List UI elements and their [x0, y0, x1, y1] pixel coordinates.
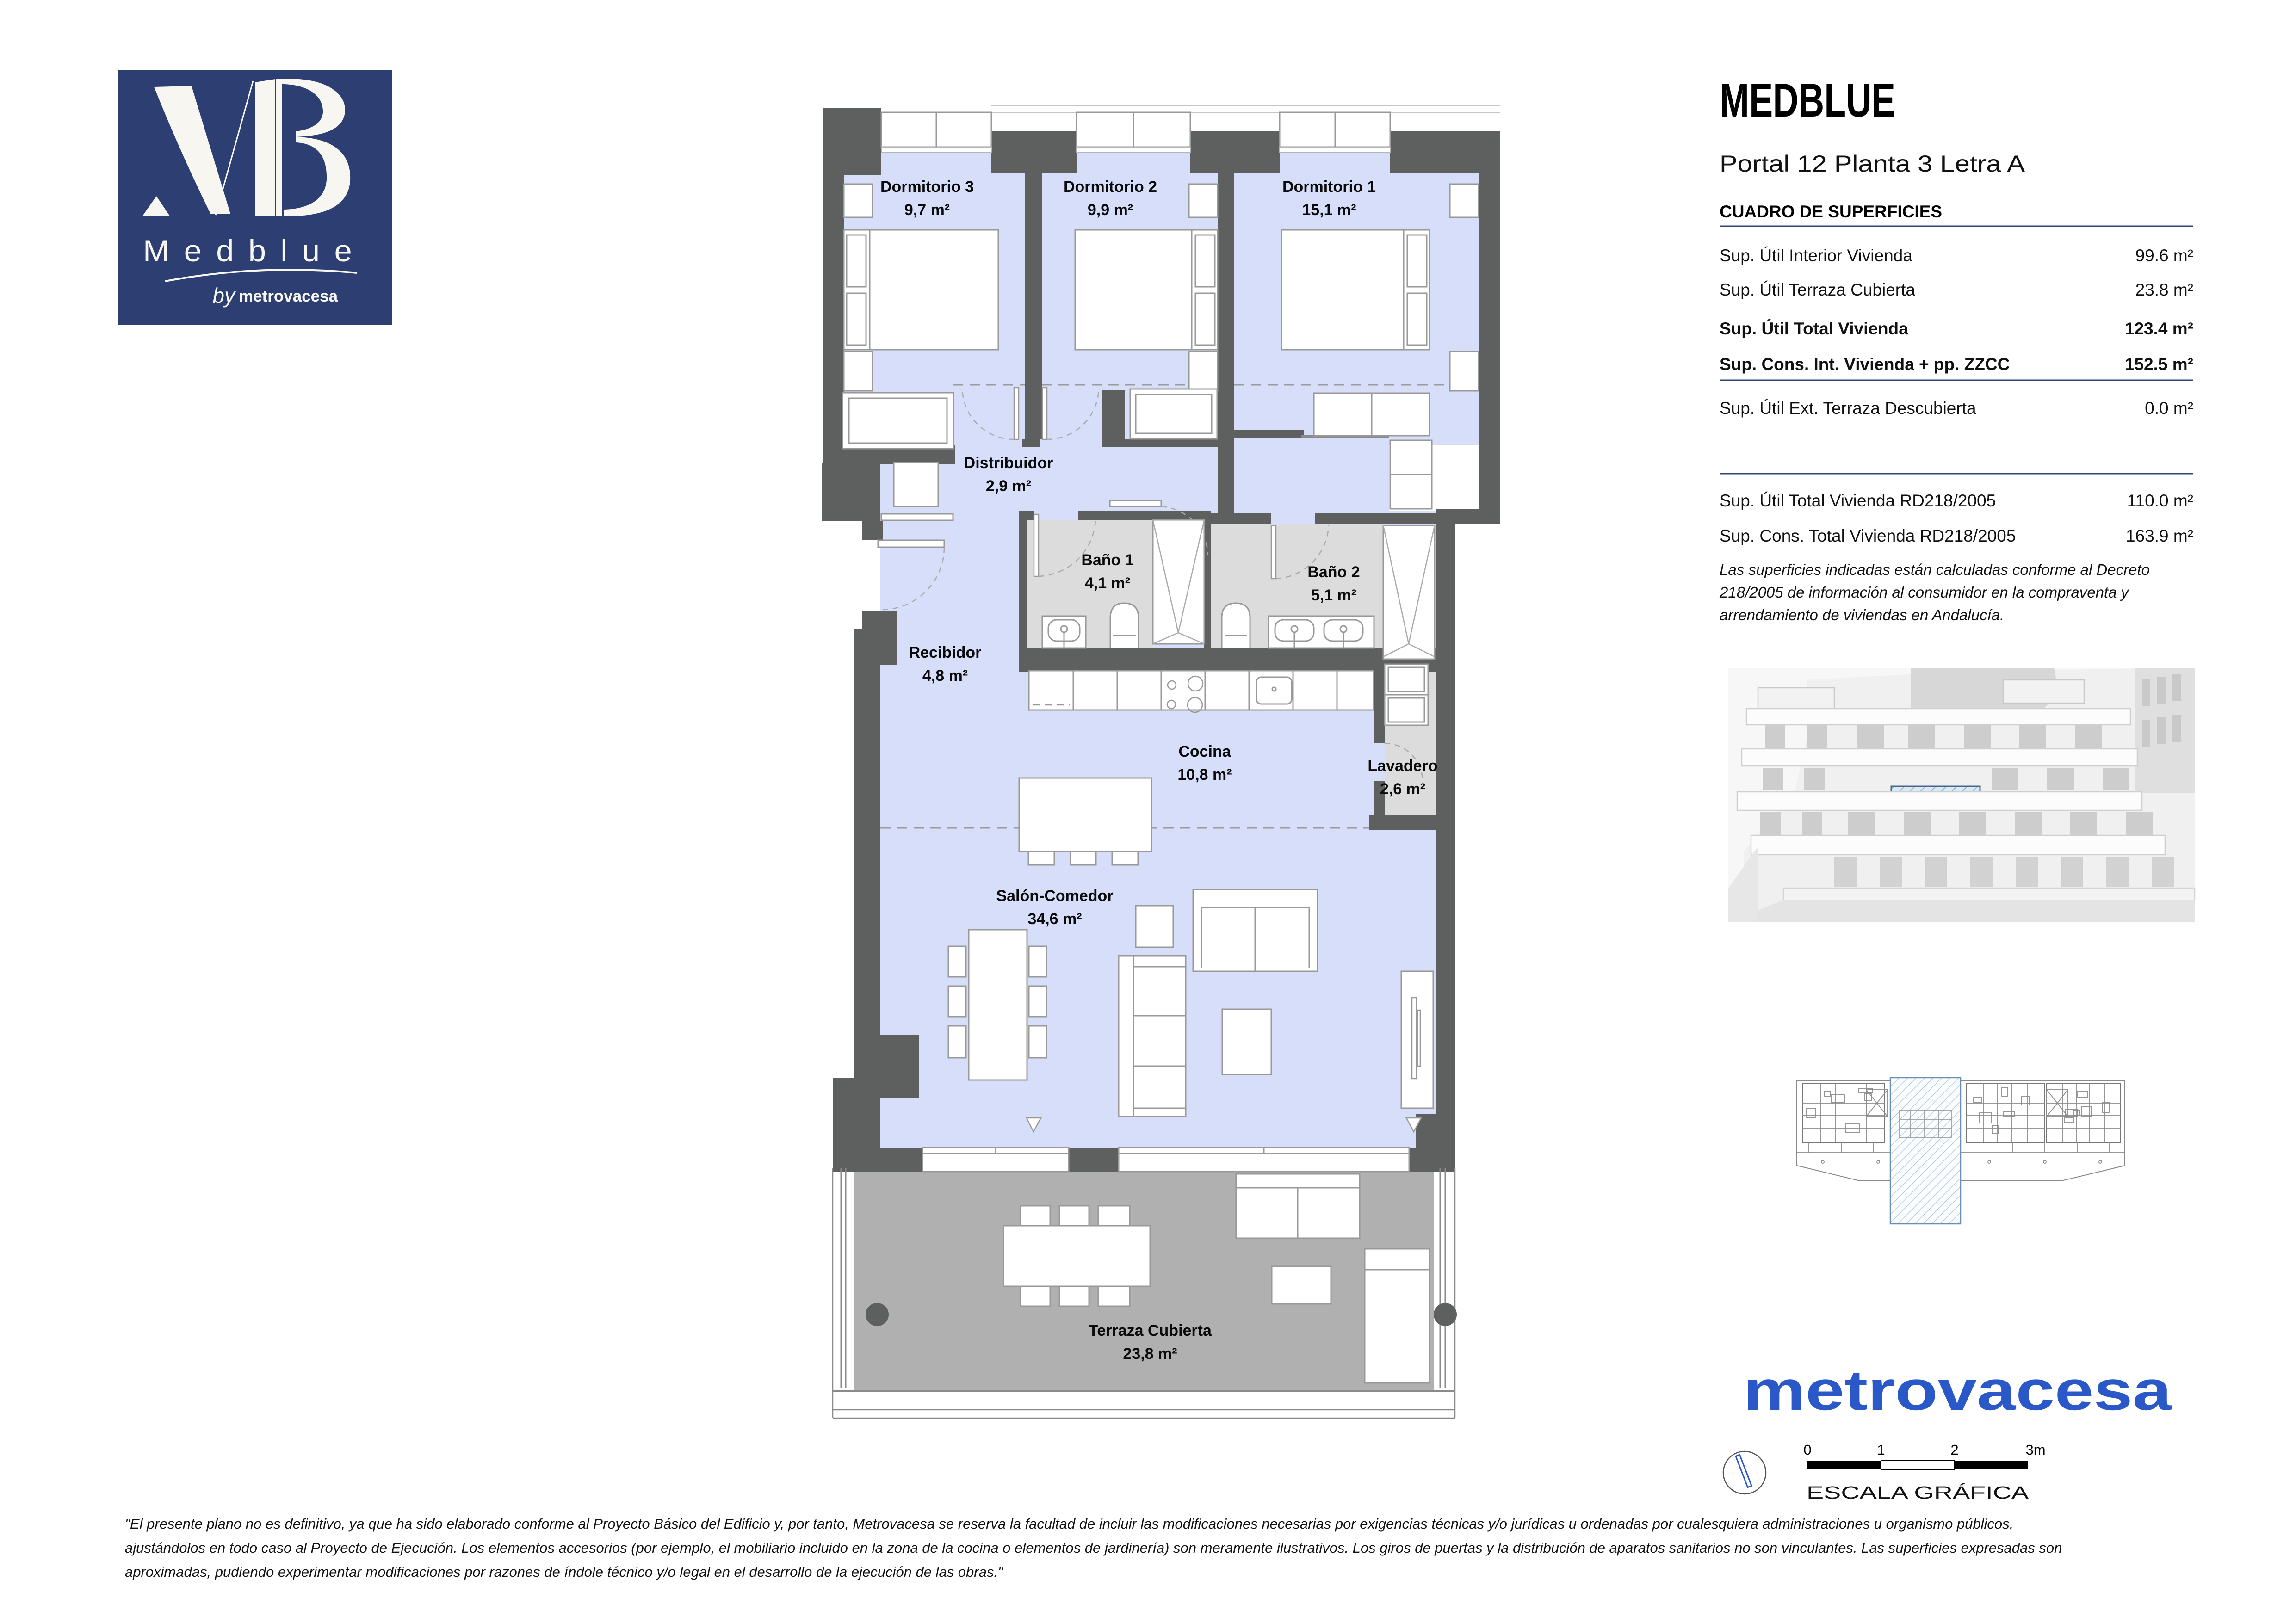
- svg-text:0: 0: [1803, 1442, 1811, 1458]
- svg-text:Baño 1: Baño 1: [1081, 551, 1133, 569]
- svg-text:Las superficies indicadas está: Las superficies indicadas están calculad…: [1720, 561, 2150, 578]
- svg-text:218/2005 de información al con: 218/2005 de información al consumidor en…: [1719, 584, 2130, 601]
- svg-text:ESCALA GRÁFICA: ESCALA GRÁFICA: [1807, 1483, 2029, 1503]
- svg-text:Sup. Útil Terraza Cubierta: Sup. Útil Terraza Cubierta: [1720, 280, 1915, 299]
- svg-text:2,9 m²: 2,9 m²: [986, 477, 1031, 495]
- svg-text:by: by: [212, 284, 236, 308]
- svg-text:Dormitorio 3: Dormitorio 3: [880, 178, 974, 196]
- svg-text:1: 1: [1877, 1442, 1885, 1458]
- svg-text:Sup. Útil Total Vivienda RD218: Sup. Útil Total Vivienda RD218/2005: [1720, 491, 1996, 510]
- svg-text:"El presente plano no es defin: "El presente plano no es definitivo, ya …: [125, 1516, 2013, 1532]
- svg-text:9,9 m²: 9,9 m²: [1088, 201, 1133, 219]
- svg-text:Baño 2: Baño 2: [1307, 563, 1360, 581]
- svg-text:CUADRO DE SUPERFICIES: CUADRO DE SUPERFICIES: [1720, 202, 1942, 221]
- svg-text:123.4 m²: 123.4 m²: [2125, 319, 2193, 338]
- svg-text:Dormitorio 2: Dormitorio 2: [1064, 178, 1157, 196]
- svg-text:2: 2: [1950, 1442, 1958, 1458]
- svg-text:9,7 m²: 9,7 m²: [904, 201, 950, 219]
- svg-text:99.6 m²: 99.6 m²: [2135, 246, 2193, 265]
- svg-text:Sup. Cons. Total Vivienda RD21: Sup. Cons. Total Vivienda RD218/2005: [1720, 526, 2016, 545]
- svg-text:Terraza Cubierta: Terraza Cubierta: [1089, 1322, 1212, 1339]
- svg-text:3m: 3m: [2025, 1442, 2045, 1458]
- svg-text:23.8 m²: 23.8 m²: [2135, 280, 2193, 299]
- svg-text:110.0 m²: 110.0 m²: [2127, 491, 2193, 510]
- svg-text:163.9 m²: 163.9 m²: [2126, 526, 2193, 545]
- svg-text:15,1 m²: 15,1 m²: [1302, 201, 1356, 219]
- svg-text:arrendamiento de viviendas en: arrendamiento de viviendas en Andalucía.: [1720, 606, 2004, 623]
- svg-text:Portal 12 Planta 3 Letra A: Portal 12 Planta 3 Letra A: [1720, 151, 2025, 177]
- svg-text:ajustándolos en todo caso al P: ajustándolos en todo caso al Proyecto de…: [125, 1540, 2062, 1556]
- svg-text:MEDBLUE: MEDBLUE: [1720, 74, 1895, 127]
- svg-text:23,8 m²: 23,8 m²: [1123, 1345, 1177, 1363]
- svg-text:Salón-Comedor: Salón-Comedor: [996, 887, 1113, 905]
- svg-text:metrovacesa: metrovacesa: [239, 287, 338, 305]
- svg-text:5,1 m²: 5,1 m²: [1311, 586, 1356, 604]
- svg-text:152.5 m²: 152.5 m²: [2125, 355, 2193, 374]
- svg-text:Sup. Útil Ext. Terraza Descubi: Sup. Útil Ext. Terraza Descubierta: [1720, 399, 1976, 418]
- svg-text:aproximadas, pudiendo experime: aproximadas, pudiendo experimentar modif…: [125, 1564, 1004, 1580]
- svg-text:Medblue: Medblue: [143, 234, 366, 268]
- svg-text:0.0 m²: 0.0 m²: [2145, 399, 2193, 418]
- svg-text:4,8 m²: 4,8 m²: [922, 667, 968, 685]
- svg-text:34,6 m²: 34,6 m²: [1027, 910, 1082, 928]
- svg-text:4,1 m²: 4,1 m²: [1085, 574, 1130, 592]
- svg-text:Sup. Útil Interior Vivienda: Sup. Útil Interior Vivienda: [1720, 246, 1912, 265]
- svg-text:Recibidor: Recibidor: [909, 644, 982, 661]
- svg-text:Cocina: Cocina: [1178, 743, 1231, 760]
- svg-text:Sup. Cons. Int. Vivienda + pp.: Sup. Cons. Int. Vivienda + pp. ZZCC: [1720, 355, 2010, 374]
- svg-text:Dormitorio 1: Dormitorio 1: [1282, 178, 1376, 196]
- svg-text:Lavadero: Lavadero: [1368, 757, 1437, 775]
- svg-text:metrovacesa: metrovacesa: [1743, 1359, 2172, 1422]
- svg-text:Distribuidor: Distribuidor: [964, 454, 1053, 472]
- svg-text:Sup. Útil Total Vivienda: Sup. Útil Total Vivienda: [1720, 319, 1908, 338]
- svg-text:10,8 m²: 10,8 m²: [1177, 766, 1232, 784]
- svg-text:2,6 m²: 2,6 m²: [1380, 780, 1425, 798]
